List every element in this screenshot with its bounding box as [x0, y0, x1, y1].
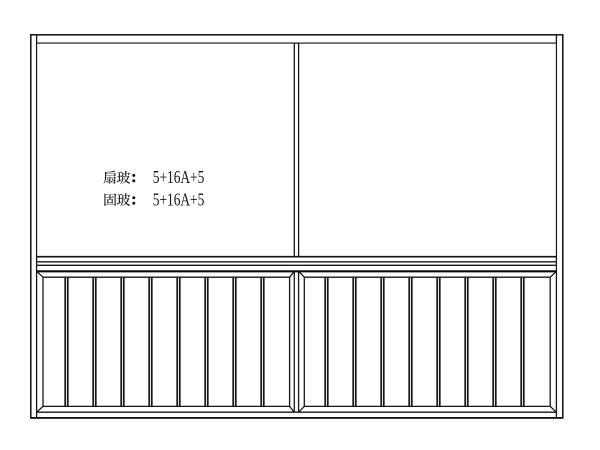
svg-text:5+16A+5: 5+16A+5: [153, 167, 205, 187]
svg-text:5+16A+5: 5+16A+5: [153, 190, 205, 210]
